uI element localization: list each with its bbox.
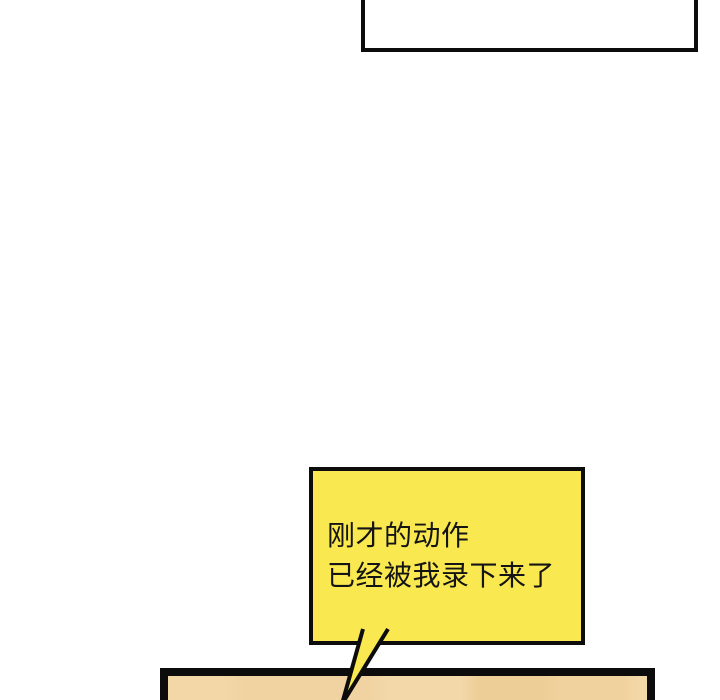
- speech-bubble-tail: [320, 600, 410, 700]
- comic-page: 刚才的动作 已经被我录下来了: [0, 0, 720, 700]
- panel-top-empty: [361, 0, 698, 52]
- speech-text-line-1: 刚才的动作: [327, 516, 581, 556]
- tail-spike-shape: [342, 629, 388, 700]
- speech-text-line-2: 已经被我录下来了: [327, 556, 581, 596]
